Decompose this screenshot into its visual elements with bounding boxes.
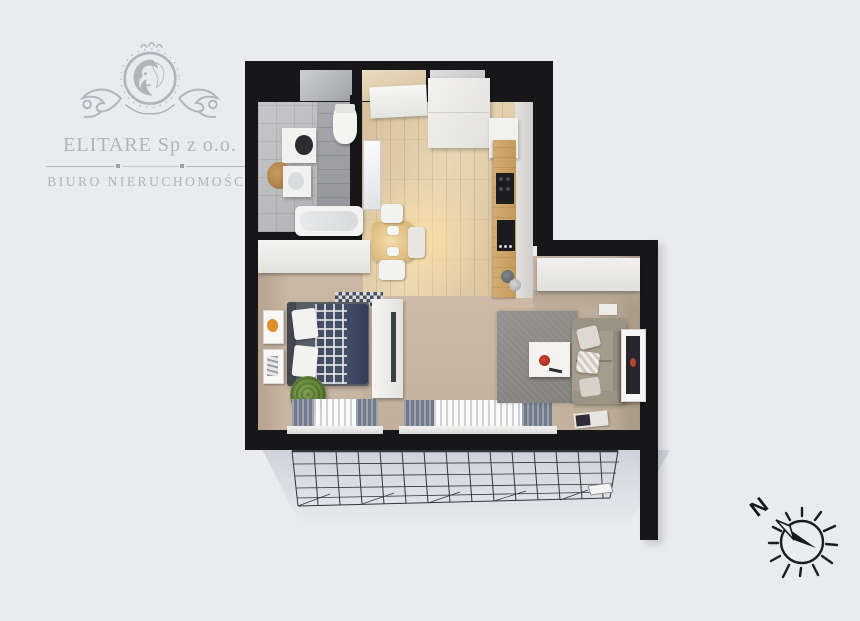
window-curtains-left [292,399,378,427]
kitchen-bowl [509,279,521,291]
bedroom-closet [258,240,370,273]
sofa-pillow [579,377,601,398]
pillow [291,345,318,378]
orange-artwork [267,319,278,332]
company-name: ELITARE Sp z o.o. [38,134,262,157]
remote-control [549,368,562,374]
wall-left [245,61,258,450]
shoe-cabinet [369,85,428,119]
compass-north-icon: N [738,482,854,598]
coffee-table [529,342,570,377]
living-room-wall-shading [533,290,640,312]
sofa-pillow [576,351,600,375]
navy-blanket [347,304,368,384]
plate [387,226,399,235]
toilet [333,104,357,144]
washing-machine [282,128,316,163]
window-sill-left [287,426,383,434]
curtain-pleat [356,399,378,427]
red-bowl [539,355,550,366]
tv-screen [391,312,396,382]
bathtub [295,206,363,236]
logo-divider [46,163,254,169]
wall-frame-orange [263,310,284,344]
floor-plan-scene: ELITARE Sp z o.o. BIURO NIERUCHOMOŚCI [0,0,860,621]
compass-north-label: N [745,492,773,521]
living-sideboard [537,258,640,291]
curtain-pleat [404,400,434,428]
sofa [572,318,626,404]
wall-mirror [363,140,381,210]
window-curtains-right [404,400,552,428]
bathroom-sink [283,166,311,197]
dining-table [372,221,413,261]
double-bed [287,302,369,386]
pillow [291,308,318,341]
tv-unit [372,299,403,398]
balcony-railing [288,448,622,512]
curtain-pleat [292,399,314,427]
sketch-artwork [267,356,278,376]
curtain-pleat [522,400,552,428]
plaid-blanket [315,304,347,384]
wall-right-upper [533,61,553,246]
sheer-curtain [314,399,356,427]
dining-chair-top [381,204,403,223]
cooktop [496,173,514,204]
washer-door [295,135,313,155]
company-logo: ELITARE Sp z o.o. BIURO NIERUCHOMOŚCI [38,40,262,190]
bathroom-window-recess [300,70,352,101]
tall-wardrobe [428,78,490,148]
lion-crest-icon [65,40,235,132]
wall-frame-sketch [263,349,284,384]
leaning-wall-art [621,329,646,402]
window-sill-right [399,426,557,434]
company-tagline: BIURO NIERUCHOMOŚCI [38,174,262,190]
wall-deco-panel [599,304,617,315]
kitchen-sink [497,220,515,251]
poster-figure [630,358,636,367]
dining-chair-right [408,227,425,258]
dining-chair-bottom [379,260,405,280]
plate [387,247,399,256]
sheer-curtain [434,400,522,428]
